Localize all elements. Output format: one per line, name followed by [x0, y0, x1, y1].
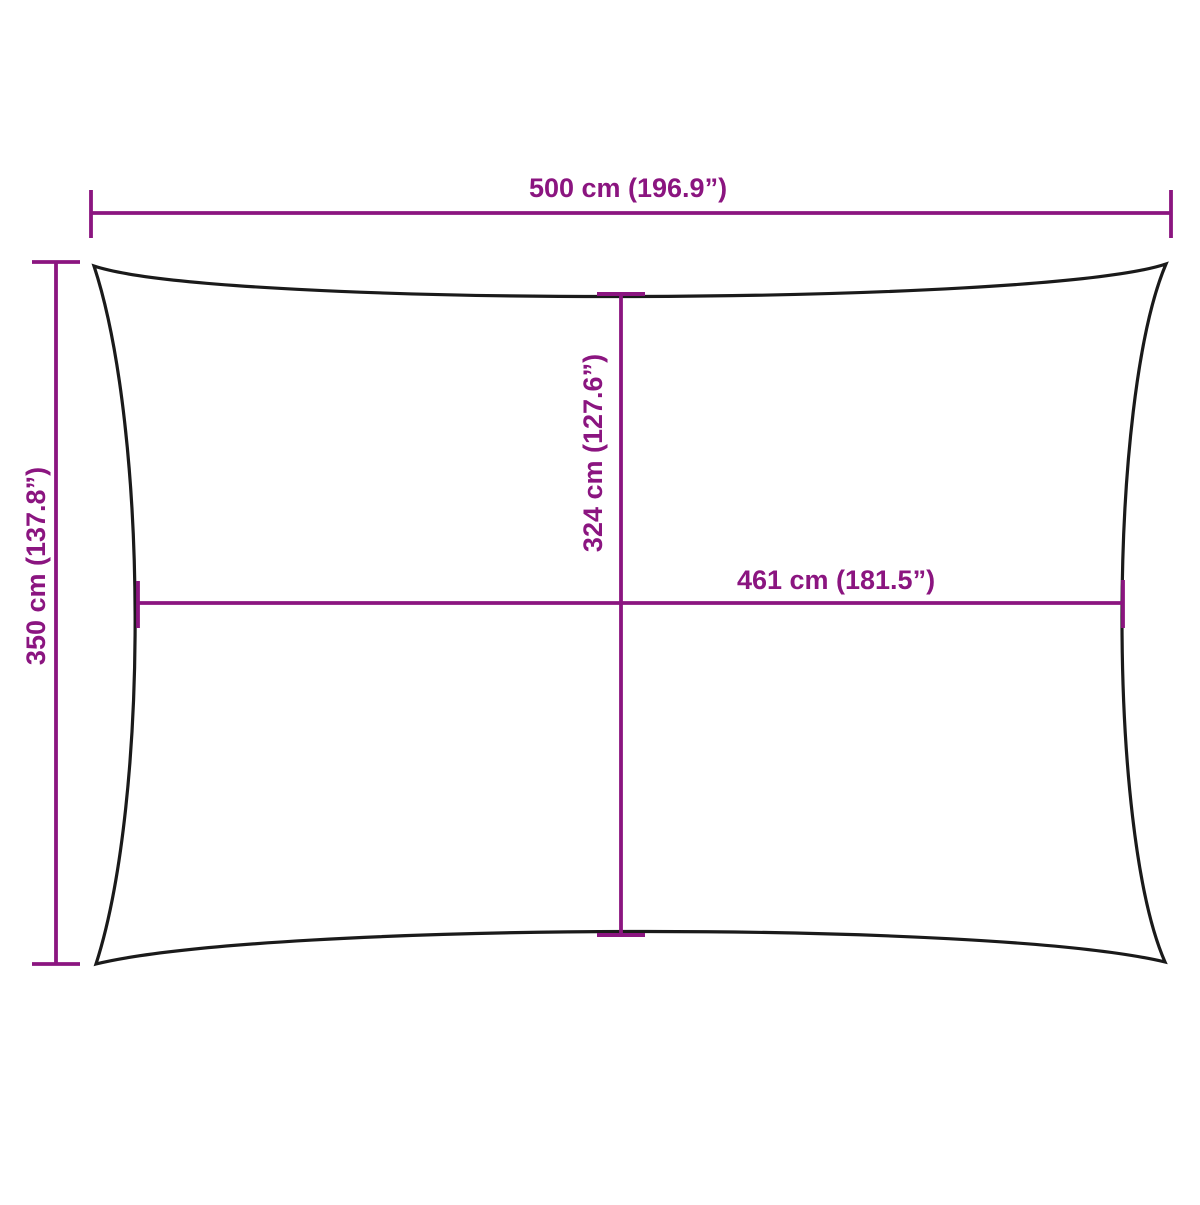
svg-text:324 cm (127.6”): 324 cm (127.6”) — [578, 354, 608, 552]
svg-text:461 cm (181.5”): 461 cm (181.5”) — [737, 565, 935, 595]
svg-text:500 cm (196.9”): 500 cm (196.9”) — [529, 173, 727, 203]
svg-text:350 cm (137.8”): 350 cm (137.8”) — [21, 467, 51, 665]
